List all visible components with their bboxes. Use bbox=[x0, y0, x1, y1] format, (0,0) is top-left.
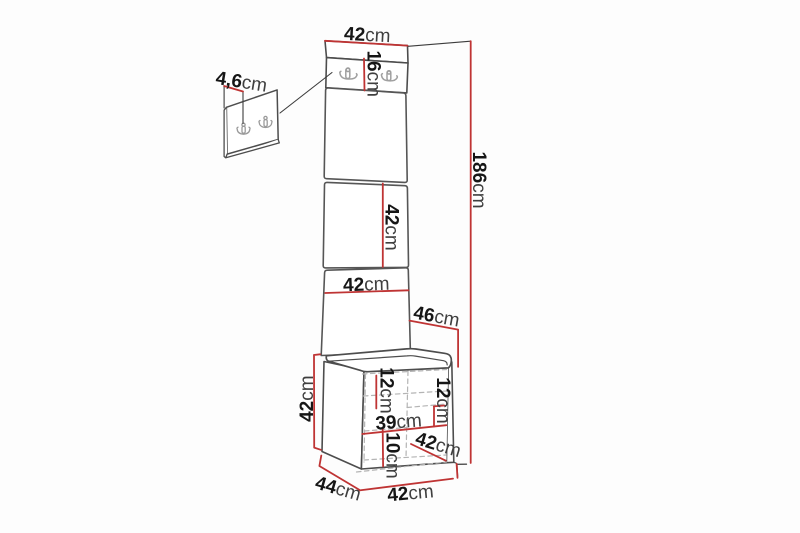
svg-text:42cm: 42cm bbox=[381, 204, 402, 250]
svg-text:4,6cm: 4,6cm bbox=[214, 68, 268, 97]
svg-text:39cm: 39cm bbox=[375, 410, 423, 434]
svg-text:186cm: 186cm bbox=[468, 151, 489, 208]
svg-text:42cm: 42cm bbox=[343, 274, 390, 297]
svg-text:44cm: 44cm bbox=[313, 473, 363, 506]
svg-text:42cm: 42cm bbox=[344, 24, 392, 47]
svg-text:46cm: 46cm bbox=[412, 303, 461, 332]
svg-text:16cm: 16cm bbox=[363, 50, 384, 96]
svg-text:12cm: 12cm bbox=[376, 367, 397, 413]
svg-text:12cm: 12cm bbox=[432, 377, 453, 423]
svg-text:10cm: 10cm bbox=[382, 432, 403, 478]
svg-text:42cm: 42cm bbox=[386, 481, 434, 506]
svg-text:42cm: 42cm bbox=[297, 375, 318, 421]
